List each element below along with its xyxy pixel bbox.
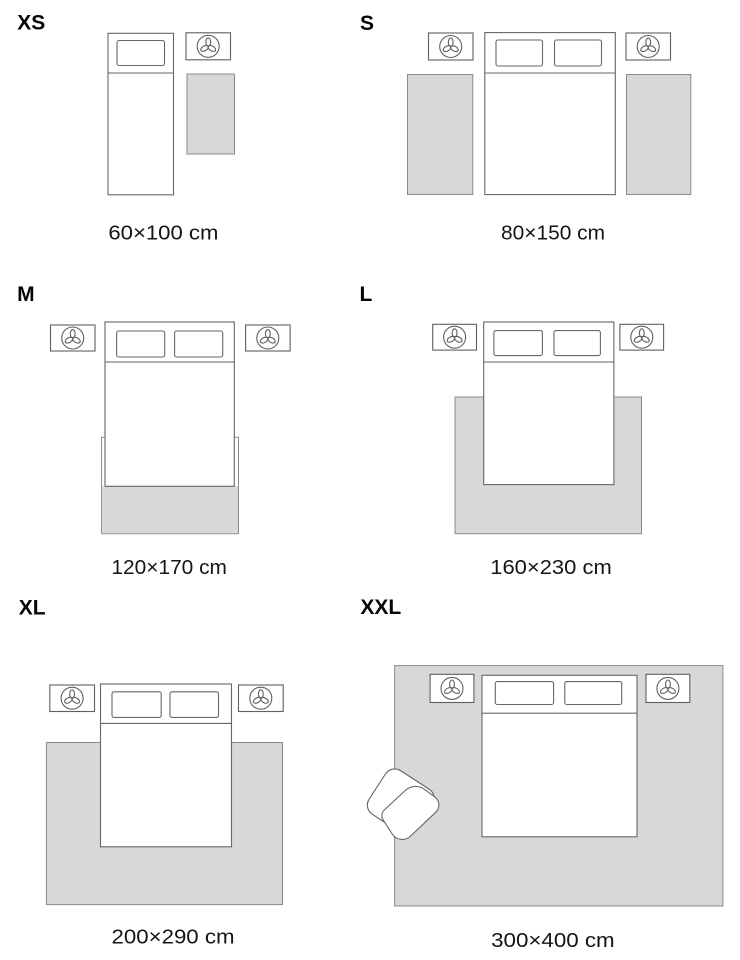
svg-text:XS: XS bbox=[17, 11, 45, 34]
svg-text:200×290 cm: 200×290 cm bbox=[112, 927, 235, 949]
svg-text:M: M bbox=[17, 283, 34, 306]
svg-text:300×400 cm: 300×400 cm bbox=[491, 930, 615, 952]
svg-text:160×230 cm: 160×230 cm bbox=[490, 557, 612, 579]
svg-text:XL: XL bbox=[19, 596, 46, 619]
svg-text:80×150 cm: 80×150 cm bbox=[501, 223, 605, 245]
svg-text:S: S bbox=[360, 12, 374, 35]
svg-text:L: L bbox=[360, 283, 373, 306]
svg-text:XXL: XXL bbox=[360, 596, 401, 619]
svg-text:60×100 cm: 60×100 cm bbox=[108, 223, 218, 245]
svg-text:120×170 cm: 120×170 cm bbox=[111, 557, 227, 579]
